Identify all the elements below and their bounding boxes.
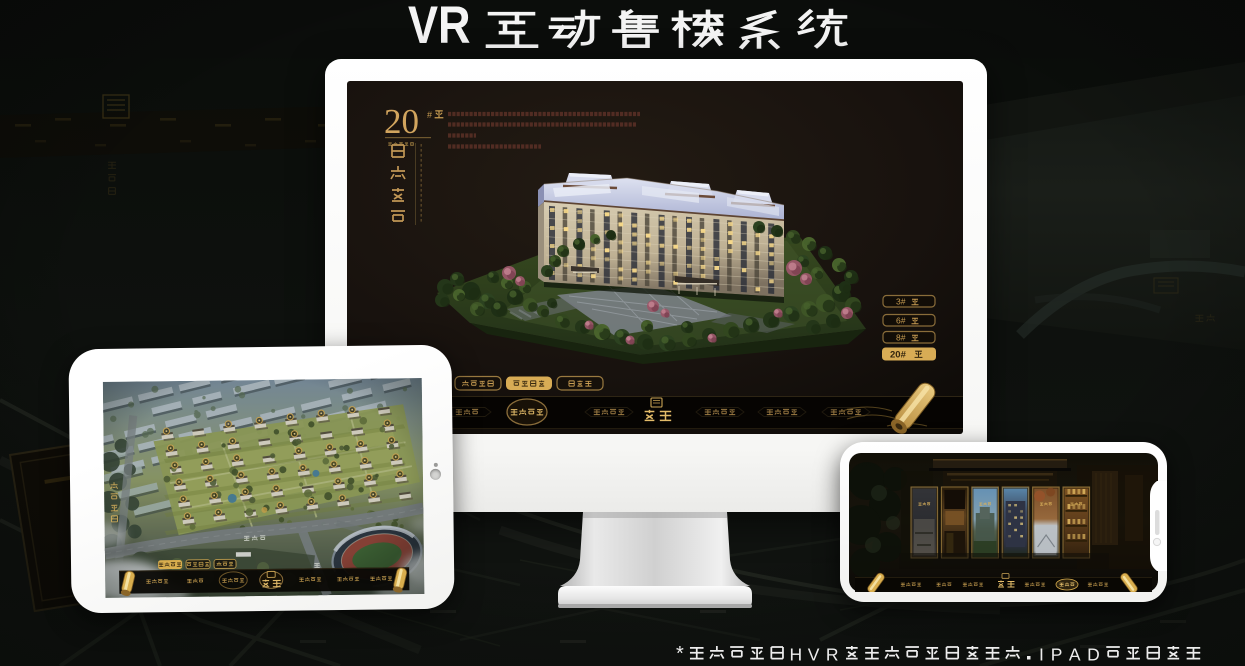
svg-text:A: A <box>1069 645 1081 665</box>
svg-text:*: * <box>676 643 684 665</box>
svg-text:6#: 6# <box>896 316 906 326</box>
svg-text:3#: 3# <box>896 297 906 307</box>
svg-text:I: I <box>1039 645 1044 665</box>
svg-text:P: P <box>1051 645 1063 665</box>
svg-text:8#: 8# <box>896 333 906 343</box>
svg-text:V: V <box>808 645 820 665</box>
svg-text:#: # <box>427 110 432 120</box>
svg-text:20#: 20# <box>890 350 907 361</box>
svg-text:H: H <box>790 645 803 665</box>
svg-text:20: 20 <box>384 102 419 141</box>
svg-text:R: R <box>826 645 839 665</box>
svg-text:D: D <box>1087 645 1100 665</box>
